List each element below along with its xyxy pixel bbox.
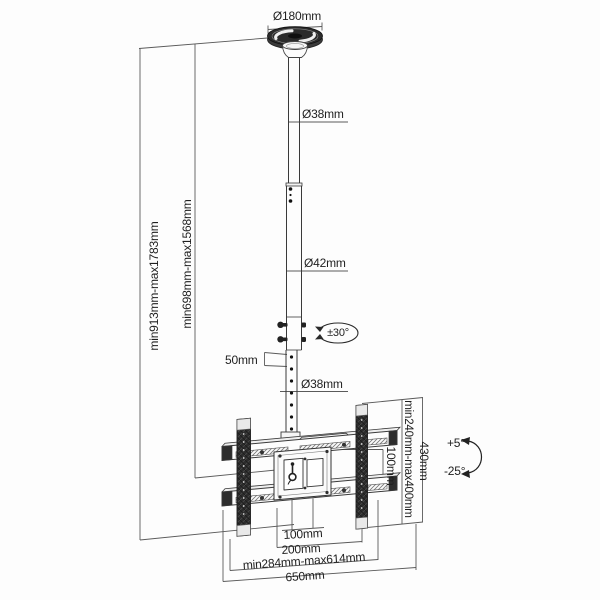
tilt-down-label: -25° — [444, 464, 476, 478]
vesa-horizontal-label: 100mm — [281, 526, 326, 542]
hole-spacing-label: 50mm — [225, 353, 259, 367]
tilt-up-label: +5° — [447, 436, 473, 450]
vesa-vertical-label: 100mm — [384, 444, 398, 488]
height-to-bracket-range-label: min698mm-max1568mm — [180, 191, 194, 337]
upper-pole-diameter-label: Ø38mm — [302, 107, 352, 121]
mid-pole-diameter-label: Ø42mm — [304, 256, 354, 270]
overall-height-range-label: min913mm-max1783mm — [147, 213, 161, 359]
ceiling-plate — [268, 27, 323, 58]
swivel-range-label: ±30° — [320, 326, 356, 340]
bracket-vertical-range-label: min240mm-max400mm — [401, 396, 415, 522]
rail-height-label: 430mm — [417, 439, 431, 483]
right-rail — [356, 404, 368, 529]
lower-pole-diameter-label: Ø38mm — [301, 377, 351, 391]
center-plate — [274, 447, 331, 500]
diagram-line-art — [0, 0, 600, 600]
ceiling-tv-mount-diagram: Ø180mm Ø38mm Ø42mm ±30° 50mm Ø38mm min91… — [0, 0, 600, 600]
tv-bracket — [222, 404, 400, 536]
left-rail — [237, 418, 251, 536]
ceiling-plate-diameter-label: Ø180mm — [268, 9, 326, 23]
